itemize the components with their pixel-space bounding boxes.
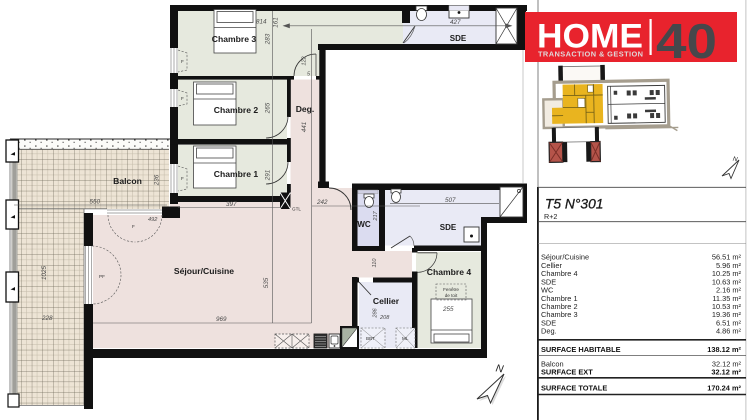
svg-text:GTL: GTL [292, 207, 301, 212]
svg-text:SDE: SDE [450, 34, 467, 43]
svg-text:Chambre 2: Chambre 2 [214, 105, 259, 115]
svg-text:Chambre 4: Chambre 4 [427, 267, 472, 277]
svg-text:Deg.: Deg. [296, 104, 315, 114]
svg-text:40: 40 [656, 15, 717, 69]
svg-text:4.86 m²: 4.86 m² [716, 327, 742, 336]
svg-text:265: 265 [265, 102, 272, 114]
svg-text:161: 161 [273, 17, 280, 28]
svg-text:T5 N°301: T5 N°301 [545, 197, 603, 212]
svg-text:122: 122 [302, 55, 308, 65]
svg-text:110: 110 [372, 258, 378, 268]
svg-text:Deg.: Deg. [541, 327, 557, 336]
svg-text:F: F [132, 224, 135, 229]
svg-text:Cellier: Cellier [373, 296, 400, 306]
svg-text:Chambre 3: Chambre 3 [212, 34, 257, 44]
svg-text:492: 492 [148, 217, 158, 223]
svg-text:550: 550 [90, 199, 101, 206]
svg-text:SDE: SDE [440, 223, 457, 232]
svg-text:255: 255 [442, 306, 454, 313]
svg-text:441: 441 [301, 122, 308, 133]
svg-text:SURFACE TOTALE: SURFACE TOTALE [541, 384, 607, 393]
svg-text:32.12 m²: 32.12 m² [711, 368, 741, 377]
svg-text:Chambre 1: Chambre 1 [214, 169, 259, 179]
svg-text:WC: WC [357, 220, 371, 229]
svg-text:427: 427 [450, 19, 461, 26]
svg-text:242: 242 [316, 199, 328, 206]
svg-text:217: 217 [373, 210, 379, 221]
svg-text:814: 814 [256, 19, 267, 26]
svg-text:397: 397 [226, 201, 237, 208]
svg-text:Balcon: Balcon [113, 176, 142, 186]
svg-text:1025: 1025 [41, 266, 48, 281]
svg-text:SURFACE HABITABLE: SURFACE HABITABLE [541, 345, 621, 354]
svg-text:969: 969 [216, 316, 227, 323]
svg-text:507: 507 [445, 197, 456, 204]
svg-text:228: 228 [41, 315, 53, 322]
svg-text:236: 236 [154, 174, 161, 186]
svg-text:208: 208 [379, 315, 390, 321]
svg-text:R+2: R+2 [544, 212, 557, 221]
svg-text:Fenêtre: Fenêtre [443, 287, 459, 292]
svg-text:Séjour/Cuisine: Séjour/Cuisine [174, 266, 234, 276]
svg-text:138.12 m²: 138.12 m² [707, 345, 741, 354]
svg-text:170.24 m²: 170.24 m² [707, 384, 741, 393]
svg-text:535: 535 [263, 277, 270, 288]
svg-text:F: F [181, 176, 184, 181]
svg-text:283: 283 [265, 33, 272, 45]
svg-text:F: F [181, 96, 184, 101]
svg-text:ML: ML [402, 336, 409, 341]
svg-text:SURFACE EXT: SURFACE EXT [541, 368, 593, 377]
svg-text:291: 291 [265, 170, 272, 182]
svg-text:de toit: de toit [445, 293, 458, 298]
svg-text:286: 286 [373, 307, 379, 318]
svg-text:PF: PF [99, 274, 105, 279]
svg-text:BBT: BBT [366, 336, 375, 341]
svg-text:TRANSACTION & GESTION: TRANSACTION & GESTION [538, 50, 643, 59]
svg-text:F: F [181, 59, 184, 64]
